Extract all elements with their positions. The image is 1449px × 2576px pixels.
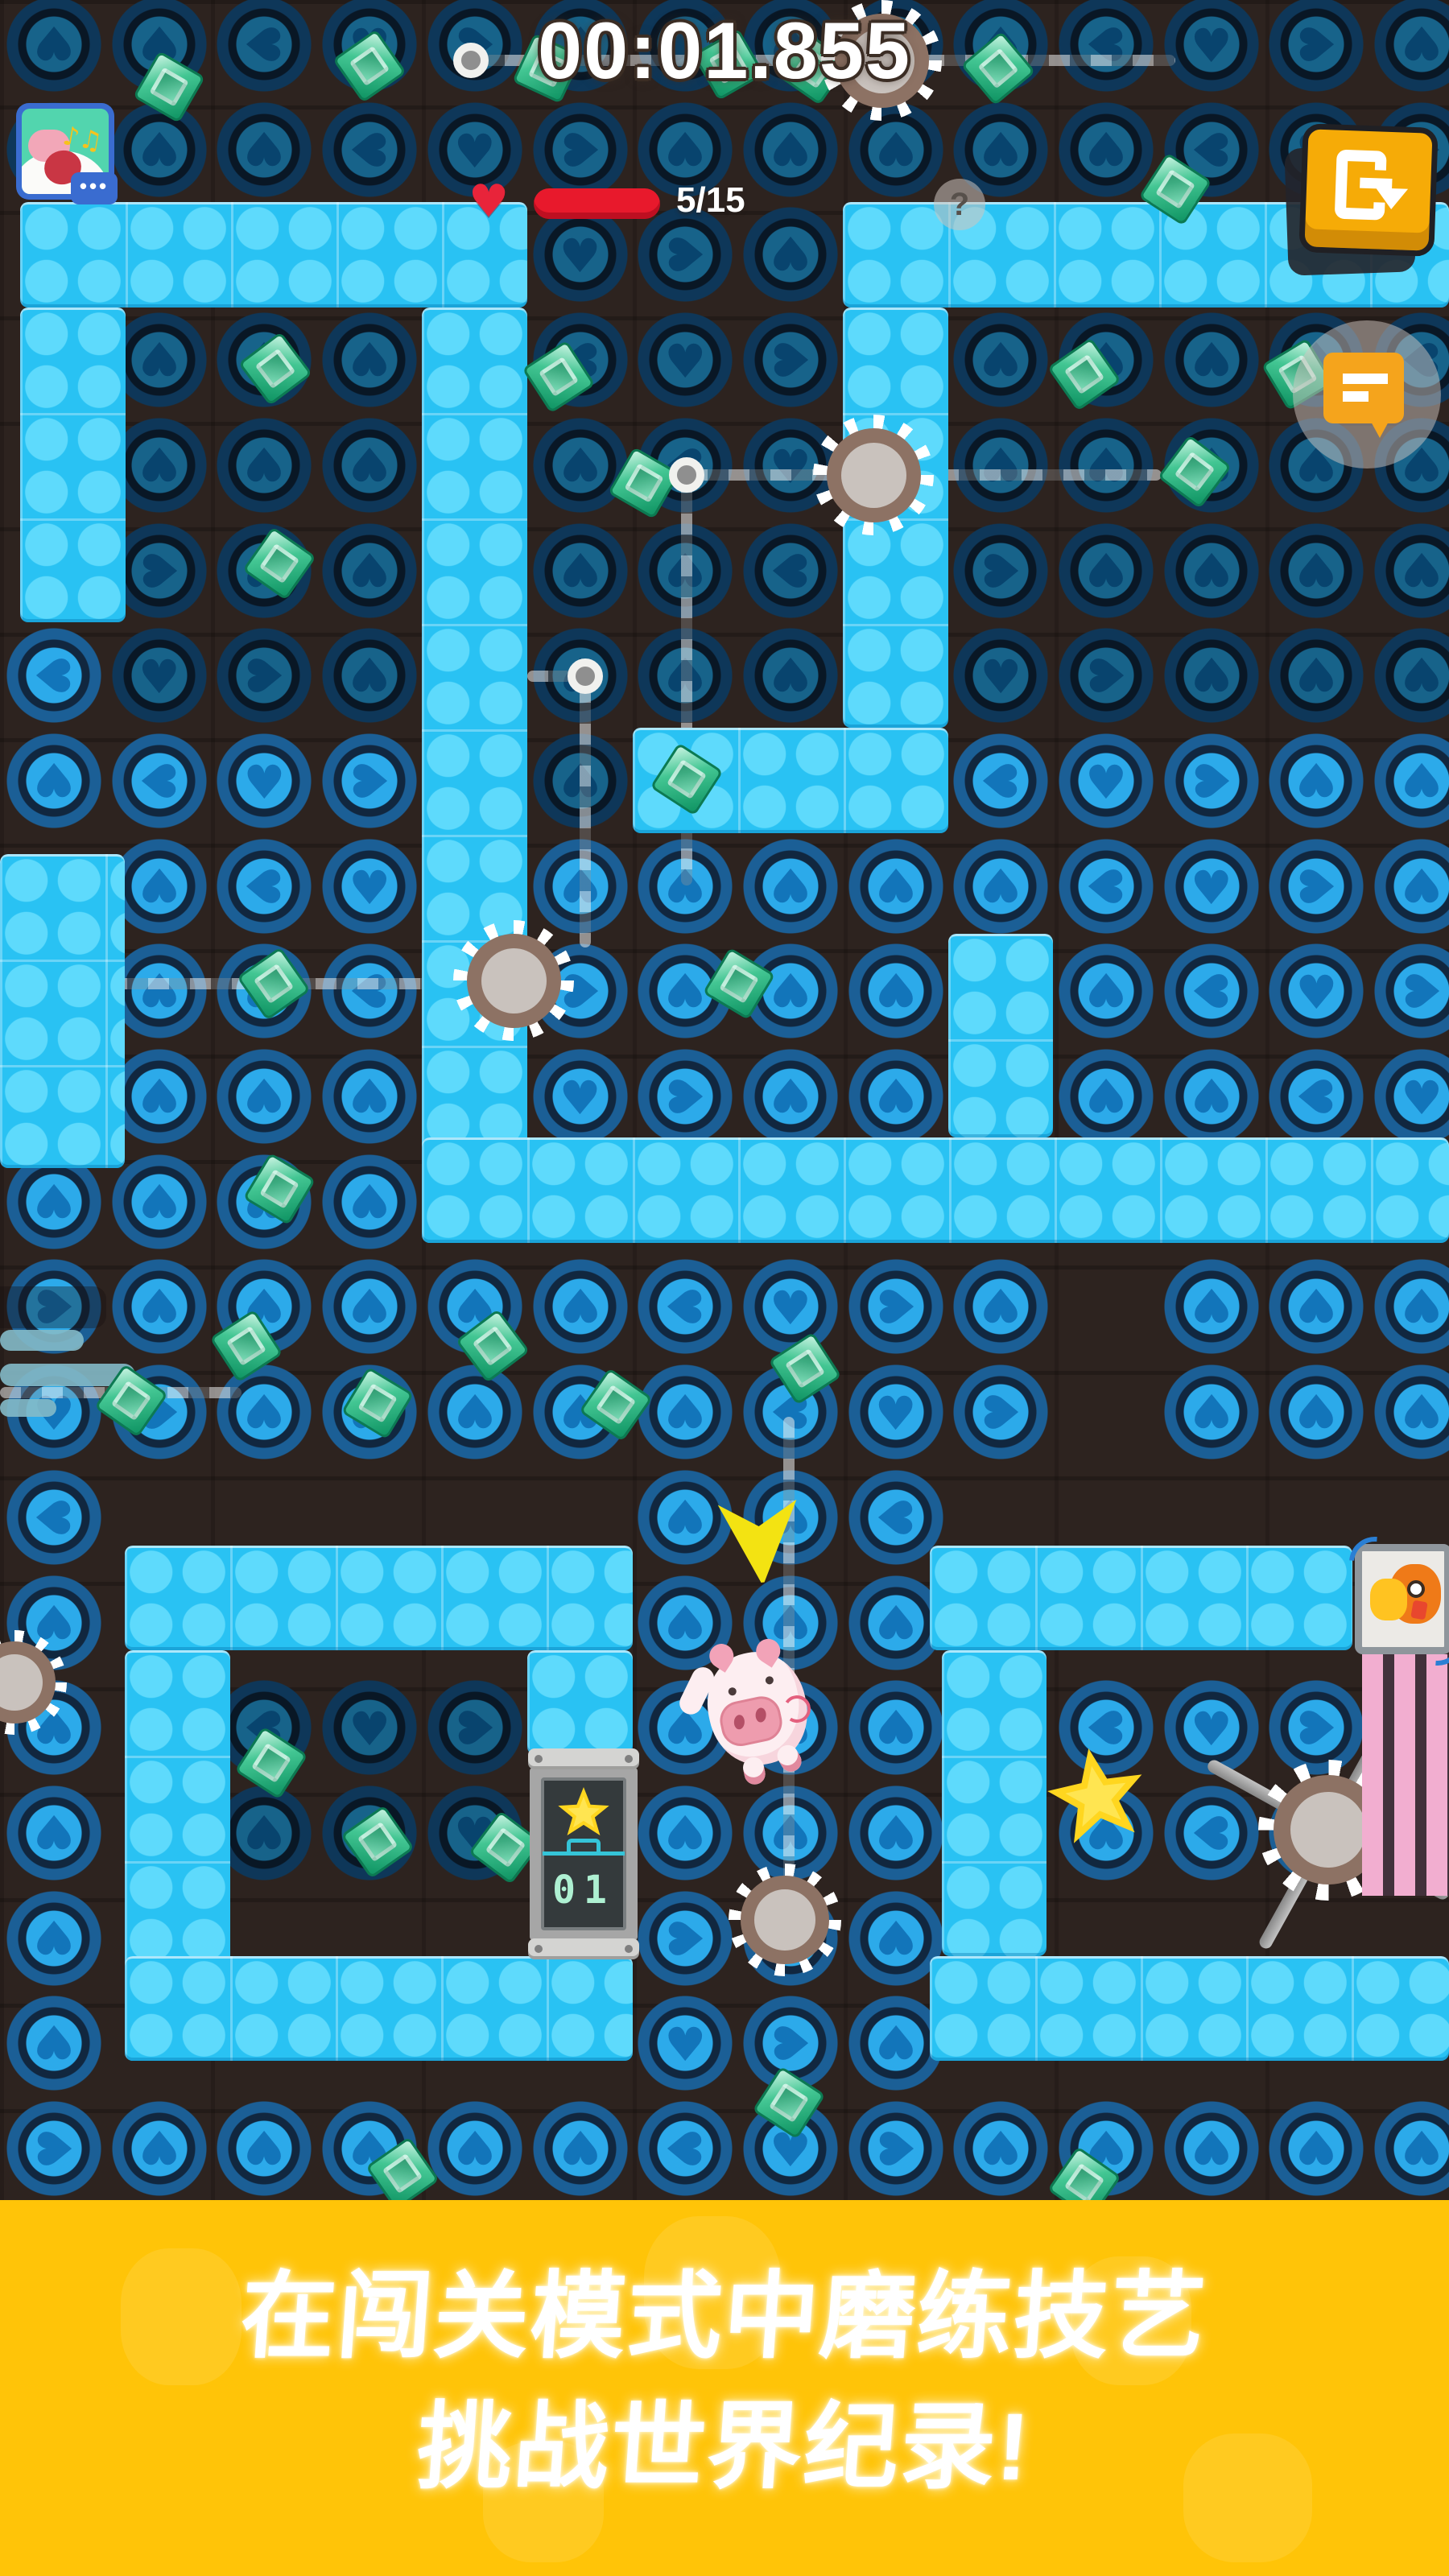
heart-stud-icon: ♥ [1162,838,1261,938]
heart-stud-icon: ♥ [1163,731,1263,831]
heart-stud-icon: ♥ [951,2097,1051,2197]
stud: ♥ [846,1783,946,1883]
heart-stud-icon: ♥ [1056,98,1156,198]
banner-line-2: 挑战世界纪录! [0,2369,1449,2507]
stud: ♥ [1372,731,1449,831]
heart-stud-icon: ♥ [108,731,208,831]
stud: ♥ [951,310,1051,410]
heart-stud-icon: ♥ [214,2097,314,2197]
heart-stud-icon: ♥ [846,835,946,935]
heart-stud-icon: ♥ [1160,1783,1260,1883]
heart-stud-icon: ♥ [1372,835,1449,935]
stud: ♥ [951,731,1051,831]
heart-stud-icon: ♥ [635,1995,735,2095]
stud: ♥ [214,731,314,831]
stud: ♥ [635,1046,735,1146]
heart-stud-icon: ♥ [530,206,630,306]
stud: ♥ [1162,731,1261,831]
heart-stud-icon: ♥ [952,521,1052,621]
heart-stud-icon: ♥ [846,1364,946,1463]
heart-stud-icon: ♥ [109,1255,209,1355]
heart-stud-icon: ♥ [1372,1360,1449,1460]
stud: ♥ [1266,625,1366,725]
stud: ♥ [1162,2099,1261,2198]
heart-stud-icon: ♥ [1266,624,1366,724]
stud: ♥ [1266,731,1366,831]
heart-stud-icon: ♥ [1162,519,1261,619]
stud: ♥ [1266,941,1366,1041]
heart-stud-icon: ♥ [530,1255,630,1355]
stud: ♥ [320,1678,419,1777]
stud: ♥ [530,521,630,621]
chicken-eye [1407,1580,1425,1598]
wall-block [0,854,125,1168]
pig-nostril [755,1707,766,1723]
heart-stud-icon: ♥ [4,1781,104,1881]
stud: ♥ [214,2099,314,2198]
heart-stud-icon: ♥ [214,1045,314,1145]
stud: ♥ [1162,941,1261,1041]
stud: ♥ [4,625,104,725]
heart-stud-icon: ♥ [637,1889,737,1988]
heart-stud-icon: ♥ [532,100,632,200]
heart-stud-icon: ♥ [848,1257,947,1356]
stud: ♥ [846,1678,946,1777]
wall-block [422,1137,1449,1243]
stud: ♥ [530,1046,630,1146]
stud: ♥ [1162,625,1261,725]
heart-stud-icon: ♥ [6,2099,105,2198]
heart-stud-icon: ♥ [741,835,840,935]
heart-stud-icon: ♥ [1266,519,1366,619]
heart-stud-icon: ♥ [1056,733,1156,832]
stud: ♥ [320,521,419,621]
exit-arrow-icon [1375,188,1408,209]
stud: ♥ [846,1257,946,1356]
stud: ♥ [109,100,209,200]
wall-block [125,1546,633,1650]
stud: ♥ [1056,941,1156,1041]
stud: ♥ [951,2099,1051,2198]
heart-stud-icon: ♥ [635,1360,735,1460]
rivet [535,1945,543,1953]
goal-cap-bottom [528,1938,639,1959]
stud: ♥ [214,1046,314,1146]
level-number: 01 [528,1868,639,1913]
heart-stud-icon: ♥ [109,2097,209,2197]
heart-stud-icon: ♥ [844,1468,944,1567]
stud: ♥ [741,1046,840,1146]
heart-stud-icon: ♥ [318,941,418,1041]
stud: ♥ [741,310,840,410]
heart-stud-icon: ♥ [951,1255,1051,1355]
heart-stud-icon: ♥ [1162,624,1261,724]
stud: ♥ [1162,521,1261,621]
stud: ♥ [109,2099,209,2198]
stud: ♥ [635,1468,735,1567]
saw-blade [453,920,574,1041]
heart-stud-icon: ♥ [951,308,1051,408]
timer-display: 00:01.855 [0,5,1449,97]
heart-stud-icon: ♥ [216,625,316,725]
heart-stud-icon: ♥ [1162,1255,1261,1355]
heart-stud-icon: ♥ [1266,2097,1366,2197]
heart-stud-icon: ♥ [741,1045,840,1145]
heart-stud-icon: ♥ [1266,1255,1366,1355]
heart-stud-icon: ♥ [320,1150,419,1250]
stud: ♥ [635,2099,735,2198]
stud: ♥ [1266,1362,1366,1462]
stud: ♥ [635,1993,735,2093]
heart-stud-icon: ♥ [637,1046,737,1146]
stud: ♥ [951,1362,1051,1462]
heart-stud-icon: ♥ [1055,836,1154,936]
heart-stud-icon: ♥ [1056,519,1156,619]
stud: ♥ [741,100,840,200]
heart-icon: ♥ [469,175,509,228]
heart-stud-icon: ♥ [213,836,312,936]
heart-stud-icon: ♥ [952,1362,1052,1462]
heart-stud-icon: ♥ [1162,1360,1261,1460]
gust-bar [0,1330,84,1351]
heart-stud-icon: ♥ [320,1679,419,1779]
more-dots-icon: ••• [71,172,118,204]
wall-block [930,1546,1352,1650]
stud: ♥ [951,836,1051,936]
heart-stud-icon: ♥ [320,414,419,514]
stud: ♥ [846,1362,946,1462]
stud: ♥ [1372,625,1449,725]
stud: ♥ [1056,415,1156,515]
heart-stud-icon: ♥ [109,1150,209,1250]
stud: ♥ [846,1046,946,1146]
heart-stud-icon: ♥ [427,1678,526,1777]
heart-stud-icon: ♥ [741,624,840,724]
stud: ♥ [320,100,419,200]
heart-stud-icon: ♥ [4,729,104,829]
stud: ♥ [320,1046,419,1146]
stud: ♥ [109,1152,209,1252]
stud: ♥ [1372,1046,1449,1146]
heart-stud-icon: ♥ [739,521,839,621]
stud: ♥ [214,836,314,936]
stud: ♥ [4,1889,104,1988]
heart-stud-icon: ♥ [530,2097,630,2197]
heart-stud-icon: ♥ [1372,519,1449,619]
music-app-button[interactable]: ♪♫ ••• [16,103,114,200]
game-board: ♥♥♥♥♥♥♥♥♥♥♥♥♥♥♥♥♥♥♥♥♥♥♥♥♥♥♥♥♥♥♥♥♥♥♥♥♥♥♥♥… [0,0,1449,2200]
heart-stud-icon: ♥ [1162,2097,1261,2197]
stud: ♥ [1372,941,1449,1041]
heart-stud-icon: ♥ [741,1258,840,1358]
heart-stud-icon: ♥ [4,1992,104,2091]
heart-stud-icon: ♥ [1266,729,1366,829]
path-node [568,658,603,694]
stud: ♥ [1162,1046,1261,1146]
heart-stud-icon: ♥ [2,625,102,725]
heart-stud-icon: ♥ [634,1257,733,1356]
stud: ♥ [951,1257,1051,1356]
stud: ♥ [4,1993,104,2093]
stud: ♥ [1056,625,1156,725]
wall-block [125,1956,633,2061]
heart-stud-icon: ♥ [741,203,840,303]
heart-stud-icon: ♥ [2,1468,102,1567]
heart-stud-icon: ♥ [1265,1046,1364,1146]
gem-counter: 5/15 [676,180,745,221]
health-bar [534,188,660,219]
heart-stud-icon: ♥ [111,521,211,621]
heart-stud-icon: ♥ [1160,941,1260,1041]
heart-stud-icon: ♥ [109,627,209,727]
heart-stud-icon: ♥ [320,624,419,724]
stud: ♥ [320,625,419,725]
stud: ♥ [530,415,630,515]
stud: ♥ [741,836,840,936]
stud: ♥ [951,625,1051,725]
saw-blade [813,415,934,535]
stud: ♥ [1372,836,1449,936]
stud: ♥ [4,1468,104,1567]
pig-character[interactable] [671,1619,845,1798]
heart-stud-icon: ♥ [321,731,421,831]
stud: ♥ [635,1362,735,1462]
wall-block [948,934,1053,1137]
heart-stud-icon: ♥ [320,519,419,619]
goal-circuit [567,1839,601,1852]
heart-stud-icon: ♥ [109,98,209,198]
stud: ♥ [1162,1362,1261,1462]
stud: ♥ [741,625,840,725]
heart-stud-icon: ♥ [951,627,1051,727]
stud: ♥ [1266,2099,1366,2198]
stud: ♥ [214,100,314,200]
game-screen: ♥♥♥♥♥♥♥♥♥♥♥♥♥♥♥♥♥♥♥♥♥♥♥♥♥♥♥♥♥♥♥♥♥♥♥♥♥♥♥♥… [0,0,1449,2576]
level-goal-box: 01 [528,1748,639,1959]
heart-stud-icon: ♥ [1372,624,1449,724]
gust-bar [0,1399,56,1417]
stud: ♥ [1162,1783,1261,1883]
heart-stud-icon: ♥ [530,519,630,619]
heart-stud-icon: ♥ [635,1781,735,1881]
heart-stud-icon: ♥ [741,98,840,198]
heart-stud-icon: ♥ [1373,941,1449,1041]
stud: ♥ [1266,836,1366,936]
banner-line-1: 在闯关模式中磨练技艺 [0,2239,1449,2376]
rivet [625,1945,633,1953]
stud: ♥ [1266,1046,1366,1146]
stud: ♥ [320,310,419,410]
stud: ♥ [530,204,630,304]
stud: ♥ [741,204,840,304]
stud: ♥ [635,310,735,410]
wall-block [422,308,527,1243]
promo-banner: 在闯关模式中磨练技艺 挑战世界纪录! [0,2200,1449,2576]
heart-stud-icon: ♥ [1056,939,1156,1039]
stud: ♥ [1372,521,1449,621]
heart-stud-icon: ♥ [1056,414,1156,514]
heart-stud-icon: ♥ [214,98,314,198]
stud: ♥ [1162,836,1261,936]
stud: ♥ [214,1362,314,1462]
heart-stud-icon: ♥ [214,1360,314,1460]
help-button[interactable]: ? [934,179,985,230]
heart-stud-icon: ♥ [635,312,735,411]
stud: ♥ [1056,731,1156,831]
stud: ♥ [214,625,314,725]
stud: ♥ [635,1257,735,1356]
stud: ♥ [1372,2099,1449,2198]
heart-stud-icon: ♥ [318,100,418,200]
stud: ♥ [1266,521,1366,621]
path-node [669,457,704,493]
speech-bubble-icon [1323,353,1404,423]
stud: ♥ [425,2099,525,2198]
heart-stud-icon: ♥ [1266,1360,1366,1460]
wall-block [20,202,527,308]
stud: ♥ [320,941,419,1041]
heart-stud-icon: ♥ [848,2099,947,2198]
chicken-cage [1355,1544,1449,1654]
rivet [535,1755,543,1763]
heart-stud-icon: ♥ [846,1781,946,1881]
heart-stud-icon: ♥ [1372,2097,1449,2197]
heart-stud-icon: ♥ [425,2097,525,2197]
stud: ♥ [320,731,419,831]
stud: ♥ [1372,1362,1449,1462]
heart-stud-icon: ♥ [634,2099,733,2198]
stud: ♥ [1266,1257,1366,1356]
wall-block [20,308,126,622]
stud: ♥ [320,836,419,936]
stud: ♥ [1056,100,1156,200]
stud: ♥ [741,521,840,621]
stud: ♥ [530,1257,630,1356]
heart-stud-icon: ♥ [742,310,842,410]
feedback-chat-button[interactable] [1293,320,1441,469]
stud: ♥ [1056,1678,1156,1777]
heart-stud-icon: ♥ [951,835,1051,935]
pig-nostril [733,1715,745,1730]
heart-stud-icon: ♥ [951,414,1051,514]
stud: ♥ [4,731,104,831]
stud: ♥ [635,1889,735,1988]
stud: ♥ [846,2099,946,2198]
heart-stud-icon: ♥ [1372,729,1449,829]
stud: ♥ [4,2099,104,2198]
heart-stud-icon: ♥ [1268,836,1368,936]
stud: ♥ [109,731,209,831]
stud: ♥ [1056,1046,1156,1146]
pink-gate [1362,1654,1449,1896]
wall-block [942,1650,1046,1956]
heart-stud-icon: ♥ [1055,1678,1154,1777]
speech-bubble-tail [1370,420,1389,438]
wall-block [930,1956,1449,2061]
stud: ♥ [320,1257,419,1356]
stud: ♥ [951,521,1051,621]
heart-stud-icon: ♥ [1372,1048,1449,1148]
stud: ♥ [320,1152,419,1252]
stud: ♥ [214,415,314,515]
stud: ♥ [425,1678,525,1777]
wall-block [527,1650,633,1755]
stud: ♥ [4,1783,104,1883]
heart-stud-icon: ♥ [846,1045,946,1145]
heart-stud-icon: ♥ [425,1360,525,1460]
gust-shadow [0,1286,106,1328]
heart-stud-icon: ♥ [846,939,946,1039]
stud: ♥ [741,1257,840,1356]
goal-circuit-line [543,1851,625,1856]
stud: ♥ [425,1362,525,1462]
heart-stud-icon: ♥ [1162,1045,1261,1145]
stud: ♥ [635,1783,735,1883]
stud: ♥ [1372,1257,1449,1356]
heart-stud-icon: ♥ [214,414,314,514]
guide-path [580,682,591,947]
stud: ♥ [1162,310,1261,410]
heart-stud-icon: ♥ [320,308,419,408]
exit-button[interactable] [1298,123,1438,257]
heart-stud-icon: ♥ [530,1048,630,1148]
heart-stud-icon: ♥ [846,1676,946,1776]
heart-stud-icon: ♥ [320,1045,419,1145]
heart-stud-icon: ♥ [4,1887,104,1987]
heart-stud-icon: ♥ [1056,1045,1156,1145]
heart-stud-icon: ♥ [214,733,314,832]
heart-stud-icon: ♥ [635,1466,735,1566]
heart-stud-icon: ♥ [1162,308,1261,408]
stud: ♥ [951,415,1051,515]
goal-cap-top [528,1748,639,1769]
stud: ♥ [530,2099,630,2198]
stud: ♥ [109,625,209,725]
stud: ♥ [1056,836,1156,936]
heart-stud-icon: ♥ [1266,943,1366,1042]
heart-stud-icon: ♥ [320,838,419,938]
heart-stud-icon: ♥ [530,414,630,514]
heart-stud-icon: ♥ [320,1255,419,1355]
stud: ♥ [846,941,946,1041]
rivet [625,1755,633,1763]
saw-blade [729,1864,841,1976]
heart-stud-icon: ♥ [949,731,1049,831]
stud: ♥ [530,100,630,200]
stud: ♥ [846,836,946,936]
stud: ♥ [109,1257,209,1356]
heart-stud-icon: ♥ [1058,625,1158,725]
stud: ♥ [1056,521,1156,621]
heart-stud-icon: ♥ [1372,1255,1449,1355]
stud: ♥ [320,415,419,515]
stud: ♥ [1162,1257,1261,1356]
